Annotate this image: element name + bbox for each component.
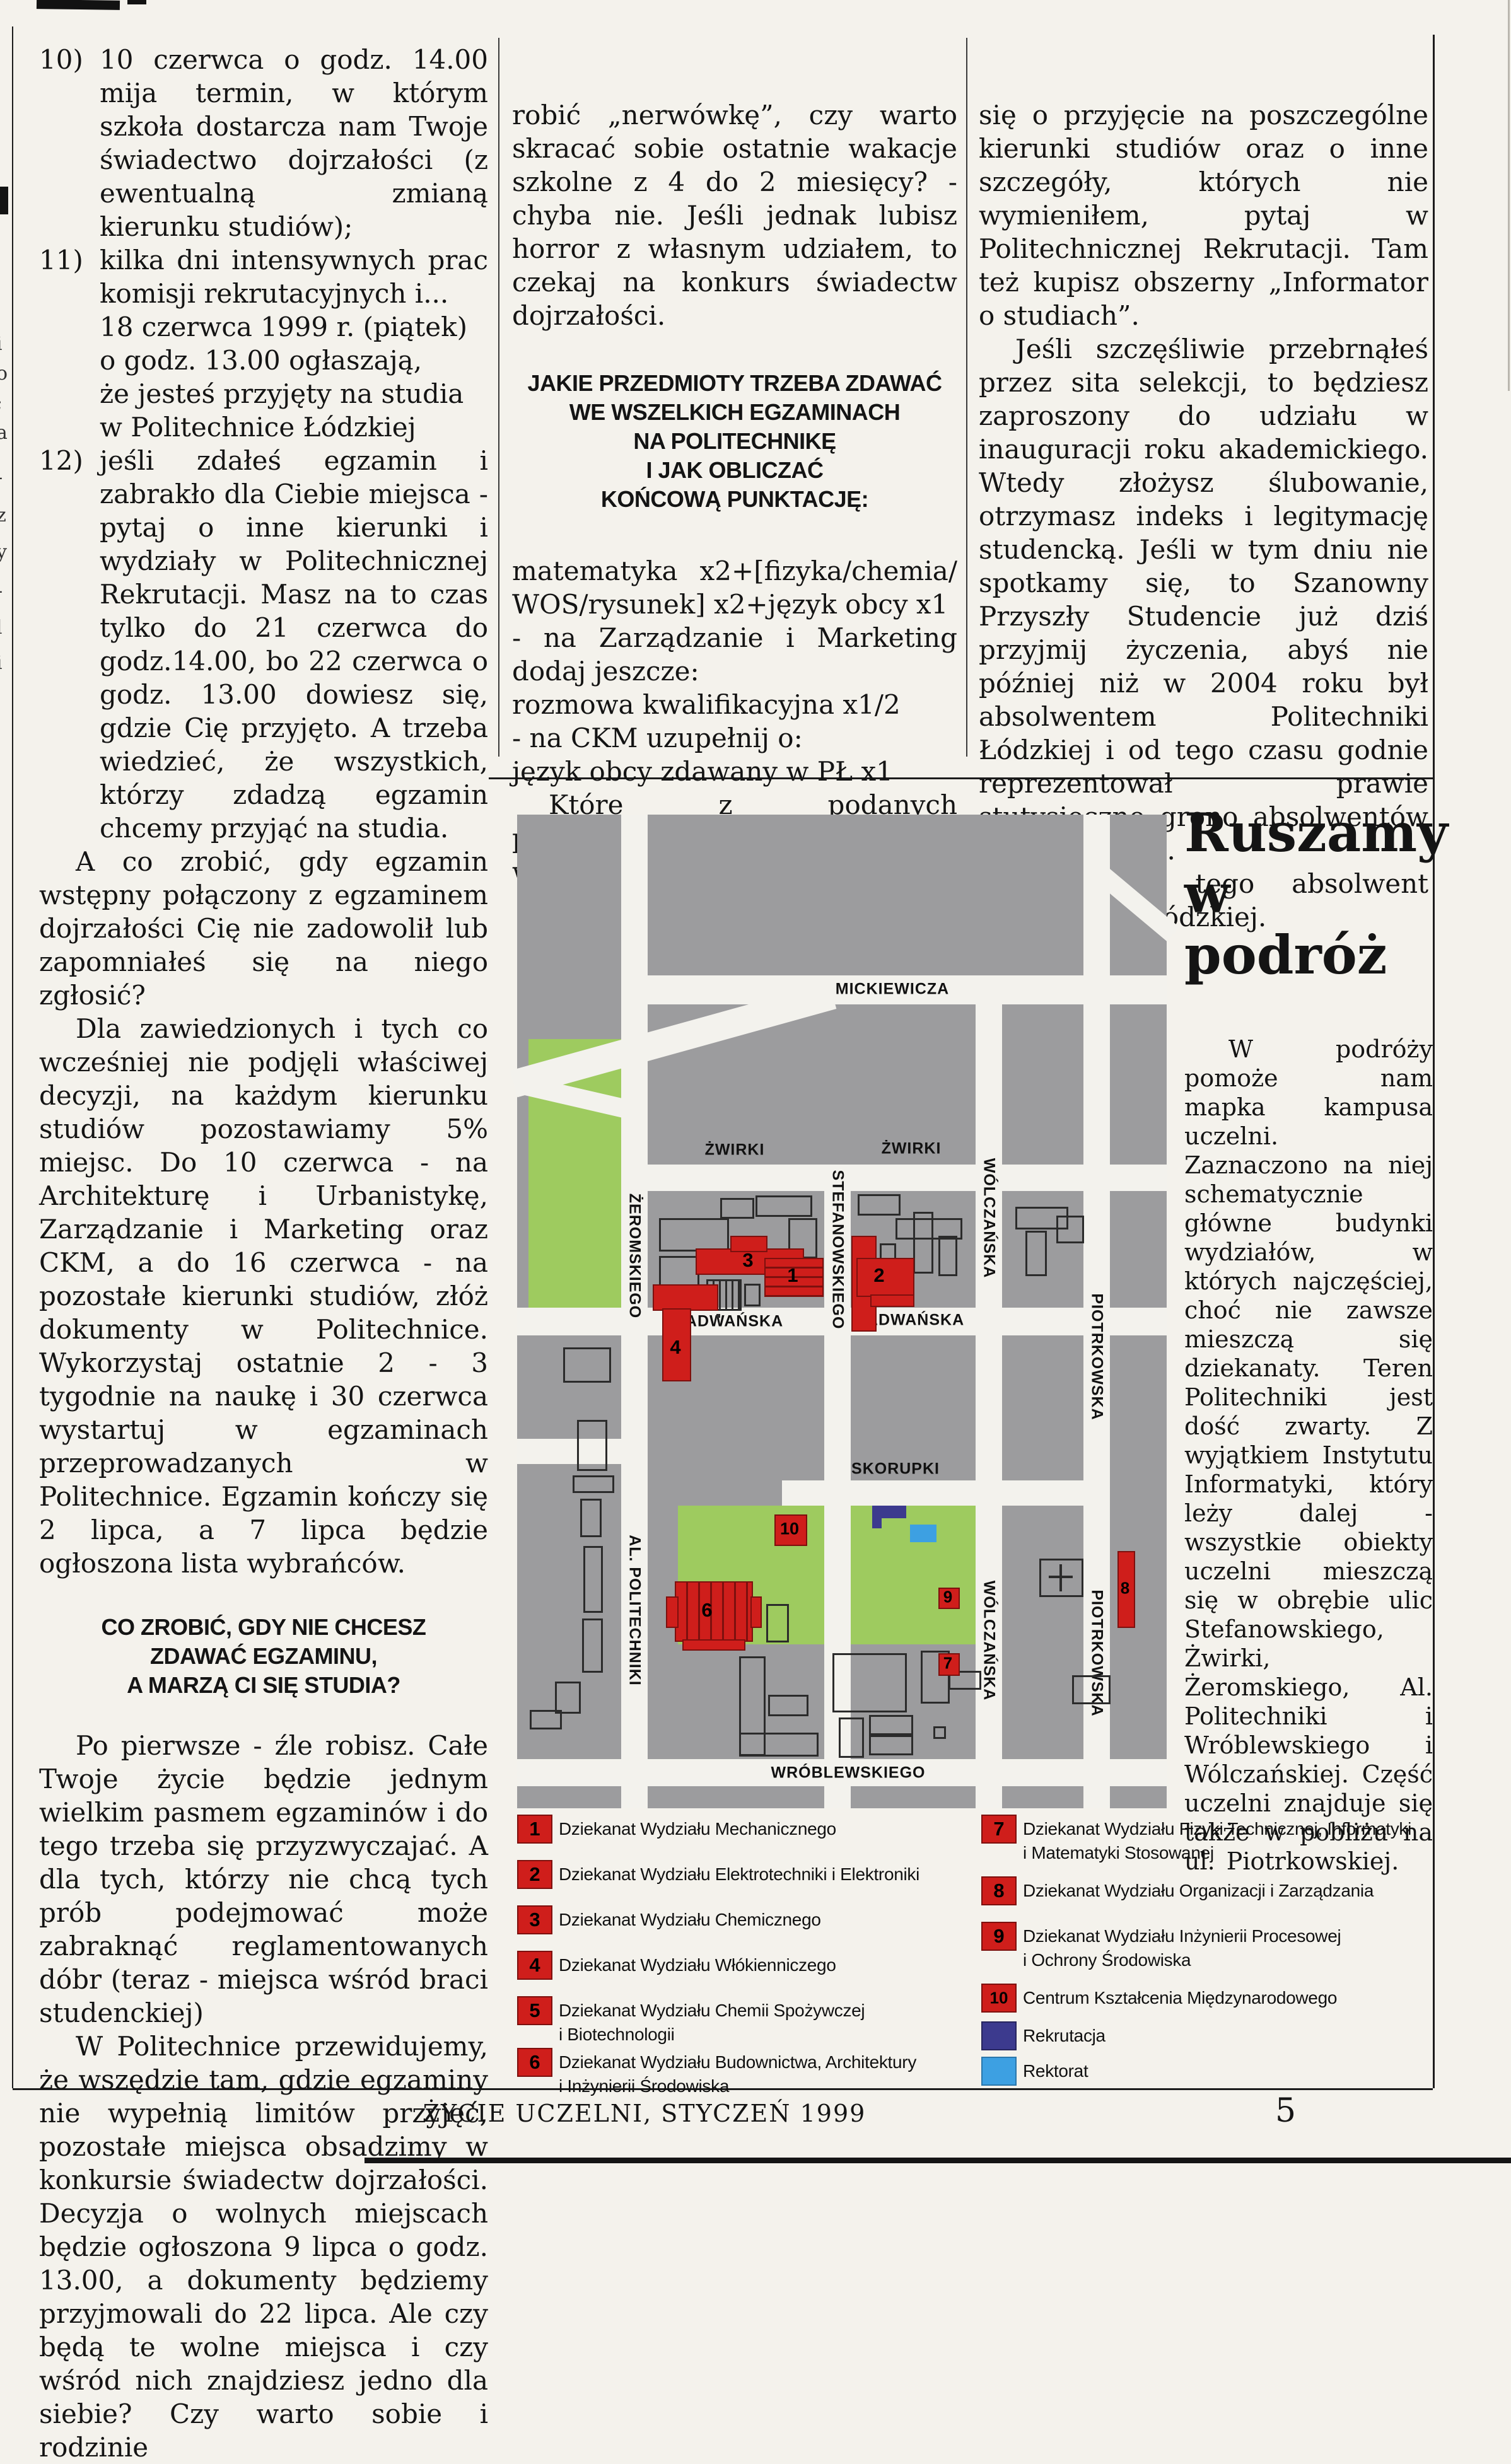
building-number: 2 xyxy=(873,1264,884,1287)
legend-label: Dziekanat Wydziału Chemicznego xyxy=(559,1908,956,1932)
legend-chip-1: 1 xyxy=(517,1815,552,1844)
feature-body: W podróży pomoże nam mapka kampusa uczel… xyxy=(1184,1035,1433,1876)
edge-glyph: - xyxy=(0,580,3,602)
feature-article: Ruszamy w podróż W podróży pomoże nam ma… xyxy=(1184,802,1433,1876)
paragraph: Dla zawiedzionych i tych co wcześniej ni… xyxy=(39,1012,488,1580)
legend-chip-10: 10 xyxy=(981,1984,1017,2013)
paragraph: robić „nerwówkę”, czy warto skracać sobi… xyxy=(512,98,957,332)
legend-label: Dziekanat Wydziału Chemii Spożywczej i B… xyxy=(559,1999,956,2047)
list-text: 10 czerwca o godz. 14.00 mija termin, w … xyxy=(100,44,488,242)
building-outline xyxy=(583,1546,603,1613)
legend-number: 4 xyxy=(529,1954,540,1977)
scan-artifact-right-edge xyxy=(1508,0,1510,391)
legend-number: 3 xyxy=(529,1909,540,1931)
list-item-12: 12) jeśli zdałeś egzamin i zabrakło dla … xyxy=(39,444,488,845)
legend-label: Dziekanat Wydziału Włókienniczego xyxy=(559,1953,956,1977)
paragraph: W Politechnice przewidujemy, że wszędzie… xyxy=(39,2030,488,2464)
legend-chip-2: 2 xyxy=(517,1860,552,1889)
feature-headline: Ruszamy w podróż xyxy=(1184,802,1433,985)
street-label-zwirki-east: ŻWIRKI xyxy=(882,1140,942,1158)
building-outline xyxy=(1025,1231,1047,1276)
recruitment-marker xyxy=(872,1506,906,1518)
building-outline xyxy=(563,1347,611,1383)
building-2-tab xyxy=(870,1294,914,1307)
legend-chip-4: 4 xyxy=(517,1951,552,1980)
building-number: 9 xyxy=(943,1588,952,1607)
legend-chip-3: 3 xyxy=(517,1905,552,1934)
building-outline xyxy=(739,1733,819,1757)
legend-number: 7 xyxy=(993,1818,1004,1840)
legend-chip-7: 7 xyxy=(981,1815,1017,1844)
scan-artifact-topleft-2 xyxy=(127,0,146,4)
paragraph: A co zrobić, gdy egzamin wstępny połączo… xyxy=(39,845,488,1012)
legend-number: 2 xyxy=(529,1863,540,1886)
street-label-skorupki: SKORUPKI xyxy=(851,1460,940,1479)
building-outline xyxy=(933,1726,946,1739)
footer-journal-title: ŻYCIE UCZELNI, STYCZEŃ 1999 xyxy=(392,2100,897,2127)
church-cross-horizontal xyxy=(1049,1576,1073,1578)
paragraph: W podróży pomoże nam mapka kampusa uczel… xyxy=(1184,1035,1433,1876)
legend-chip-5: 5 xyxy=(517,1996,552,2025)
building-outline xyxy=(1072,1675,1111,1704)
street-label-al-politechniki: AL. POLITECHNIKI xyxy=(626,1535,644,1686)
legend-number: 9 xyxy=(993,1925,1004,1948)
formula-line: rozmowa kwalifikacyjna x1/2 xyxy=(512,688,957,721)
edge-glyph: ; xyxy=(0,392,3,414)
scan-artifact-topleft xyxy=(37,0,120,10)
formula-line: - na CKM uzupełnij o: xyxy=(512,721,957,755)
building-number: 1 xyxy=(787,1264,798,1287)
building-number: 8 xyxy=(1121,1579,1129,1598)
legend-number: 10 xyxy=(990,1989,1008,2008)
building-outline xyxy=(869,1715,913,1735)
legend-label: Dziekanat Wydziału Organizacji i Zarządz… xyxy=(1023,1879,1439,1903)
article-column-2: robić „nerwówkę”, czy warto skracać sobi… xyxy=(512,43,957,888)
list-number: 10) xyxy=(39,43,83,76)
legend-label: Centrum Kształcenia Międzynarodowego xyxy=(1023,1986,1439,2010)
footer-page-number: 5 xyxy=(1275,2092,1296,2130)
building-outline xyxy=(832,1653,907,1712)
building-outline xyxy=(755,1195,812,1217)
scan-artifact-bottom-strip xyxy=(365,2158,1511,2163)
edge-glyph: i xyxy=(0,652,3,674)
list-line: w Politechnice Łódzkiej xyxy=(100,410,488,444)
street-label-wolczanska-south: WÓLCZAŃSKA xyxy=(980,1581,998,1701)
formula-line: matematyka x2+[fizyka/chemia/ WOS/rysune… xyxy=(512,554,957,621)
edge-glyph: z xyxy=(0,504,6,526)
scan-artifact-left-nub xyxy=(0,187,8,214)
street-label-piotrkowska-north: PIOTRKOWSKA xyxy=(1088,1293,1106,1420)
paragraph: się o przyjęcie na poszczególne kierunki… xyxy=(979,98,1428,332)
street-label-zeromskiego: ŻEROMSKIEGO xyxy=(626,1194,644,1319)
section-heading: JAKIE PRZEDMIOTY TRZEBA ZDAWAĆ WE WSZELK… xyxy=(512,369,957,514)
building-6-tab-left xyxy=(666,1596,679,1628)
legend-chip-recruitment xyxy=(981,2021,1017,2050)
building-outline xyxy=(839,1717,864,1758)
building-number: 4 xyxy=(670,1336,680,1359)
building-outline xyxy=(580,1499,602,1537)
street-label-zwirki-west: ŻWIRKI xyxy=(705,1141,765,1159)
legend-label: Rekrutacja xyxy=(1023,2024,1439,2048)
list-number: 12) xyxy=(39,444,83,477)
list-item-10: 10) 10 czerwca o godz. 14.00 mija termin… xyxy=(39,43,488,243)
building-6-tab-bottom xyxy=(682,1639,745,1651)
legend-label: Dziekanat Wydziału Budownictwa, Architek… xyxy=(559,2050,956,2098)
building-6-civil-engineering xyxy=(675,1581,753,1642)
list-number: 11) xyxy=(39,243,83,277)
building-outline xyxy=(582,1618,603,1673)
building-number: 3 xyxy=(742,1249,753,1272)
building-outline xyxy=(938,1236,957,1276)
street-skorupki xyxy=(782,1480,1110,1506)
legend-number: 1 xyxy=(529,1818,540,1840)
legend-label: Rektorat xyxy=(1023,2059,1439,2083)
building-outline xyxy=(555,1682,581,1714)
legend-chip-8: 8 xyxy=(981,1876,1017,1905)
building-outline xyxy=(573,1475,614,1493)
legend-label: Dziekanat Wydziału Fizyki Technicznej, I… xyxy=(1023,1817,1439,1865)
building-outline xyxy=(869,1735,913,1755)
building-outline xyxy=(768,1695,808,1716)
paragraph: Po pierwsze - źle robisz. Całe Twoje życ… xyxy=(39,1729,488,2030)
building-outline xyxy=(766,1604,789,1642)
building-6-tab-right xyxy=(750,1596,762,1628)
edge-glyph: y xyxy=(0,541,7,563)
building-2-electrical xyxy=(856,1258,914,1297)
street-label-stefanowskiego: STEFANOWSKIEGO xyxy=(829,1170,847,1330)
list-item-11: 11) kilka dni intensywnych prac komisji … xyxy=(39,243,488,444)
list-text: jeśli zdałeś egzamin i zabrakło dla Cieb… xyxy=(100,445,488,844)
building-outline xyxy=(1056,1216,1084,1243)
edge-glyph: a xyxy=(0,422,8,444)
section-heading: CO ZROBIĆ, GDY NIE CHCESZ ZDAWAĆ EGZAMIN… xyxy=(39,1613,488,1700)
article-column-3: się o przyjęcie na poszczególne kierunki… xyxy=(979,43,1428,934)
building-outline-round xyxy=(716,1314,720,1318)
page-left-rule xyxy=(12,26,13,2088)
legend-number: 8 xyxy=(993,1880,1004,1902)
legend-label: Dziekanat Wydziału Inżynierii Procesowej… xyxy=(1023,1924,1439,1972)
building-outline xyxy=(720,1198,754,1219)
building-number: 6 xyxy=(701,1599,712,1622)
page-right-rule xyxy=(1433,35,1435,2088)
building-4-textile-bar xyxy=(653,1284,718,1311)
street-label-wroblewskiego: WRÓBLEWSKIEGO xyxy=(771,1764,926,1782)
formula-line: - na Zarządzanie i Marketing dodaj jeszc… xyxy=(512,621,957,688)
column-rule-2 xyxy=(966,38,967,757)
column-rule-1 xyxy=(498,38,499,757)
building-number: 10 xyxy=(780,1520,799,1539)
campus-map: MICKIEWICZA ŻWIRKI ŻWIRKI RADWAŃSKA RADW… xyxy=(517,815,1167,1808)
building-outline xyxy=(744,1284,761,1306)
list-line: 18 czerwca 1999 r. (piątek) xyxy=(100,310,488,344)
legend-number: 5 xyxy=(529,1999,540,2022)
list-text: kilka dni intensywnych prac komisji rekr… xyxy=(100,245,488,309)
paragraph: Jeśli szczęśliwie przebrnąłeś przez sita… xyxy=(979,332,1428,867)
recruitment-marker-leg xyxy=(872,1517,882,1528)
list-line: że jesteś przyjęty na studia xyxy=(100,377,488,410)
building-outline xyxy=(530,1710,562,1729)
formula-line: język obcy zdawany w PŁ x1 xyxy=(512,755,957,788)
legend-label: Dziekanat Wydziału Mechanicznego xyxy=(559,1817,956,1841)
legend-label: Dziekanat Wydziału Elektrotechniki i Ele… xyxy=(559,1863,956,1886)
street-label-wolczanska-north: WÓLCZAŃSKA xyxy=(980,1158,998,1279)
street-zwirki xyxy=(621,1165,1167,1191)
edge-glyph: o xyxy=(0,363,8,385)
building-outline xyxy=(858,1194,901,1216)
list-line: o godz. 13.00 ogłaszają, xyxy=(100,344,488,377)
church-icon xyxy=(1039,1559,1083,1597)
edge-glyph: i xyxy=(0,333,3,355)
building-outline xyxy=(577,1420,607,1471)
rectorate-marker xyxy=(910,1525,936,1542)
edge-glyph: l xyxy=(0,617,3,639)
edge-glyph: - xyxy=(0,467,3,489)
building-outline xyxy=(659,1218,729,1252)
building-number: 7 xyxy=(943,1654,952,1673)
legend-chip-rectorate xyxy=(981,2057,1017,2086)
building-outline xyxy=(913,1212,933,1274)
legend-number: 6 xyxy=(529,2051,540,2074)
legend-chip-9: 9 xyxy=(981,1922,1017,1951)
legend-chip-6: 6 xyxy=(517,2048,552,2077)
street-label-mickiewicza: MICKIEWICZA xyxy=(836,980,949,999)
